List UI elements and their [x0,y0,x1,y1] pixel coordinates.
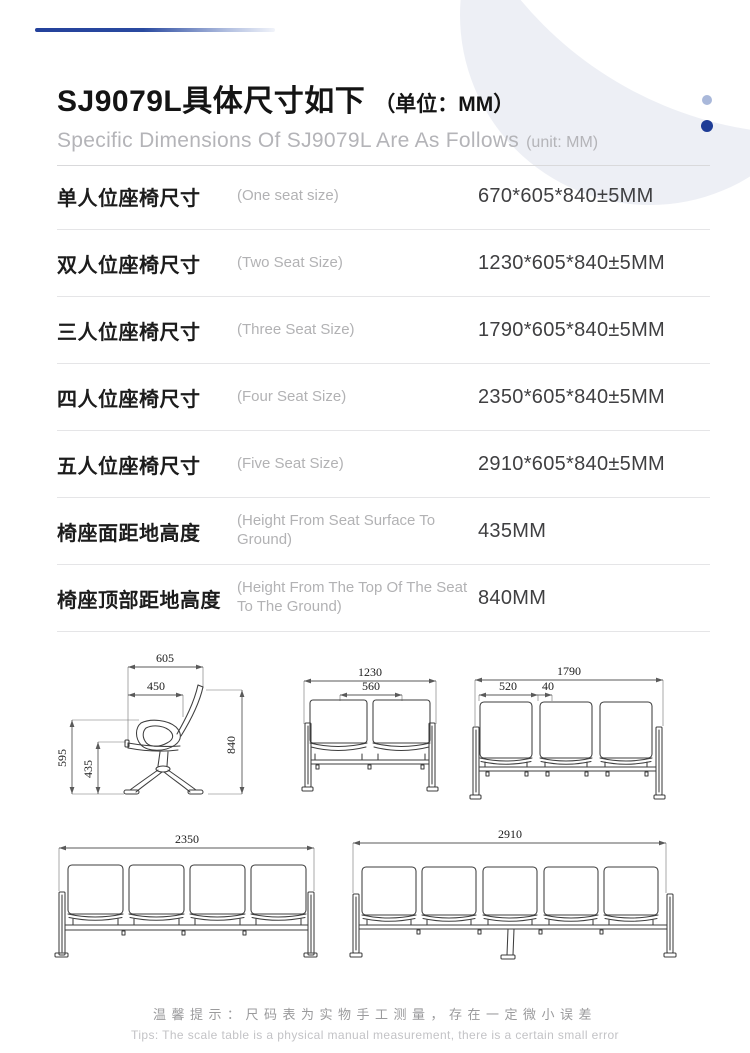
page-subtitle: Specific Dimensions Of SJ9079L Are As Fo… [57,129,519,153]
dim-label-595: 595 [55,749,69,767]
dim-label-560: 560 [362,679,380,693]
dim-label-840: 840 [224,736,238,754]
drawing-three-seat-front-view: 1790 520 40 [460,668,675,803]
row-label-zh: 五人位座椅尺寸 [57,450,237,479]
row-label-zh: 双人位座椅尺寸 [57,249,237,278]
row-label-zh: 椅座顶部距地高度 [57,584,237,613]
spec-sheet-page: SJ9079L具体尺寸如下 （单位：MM） Specific Dimension… [0,0,750,1053]
bench-outline [470,702,665,799]
dimension-lines: 1230 560 [304,665,436,724]
row-label-en: (Height From Seat Surface To Ground) [237,512,478,550]
row-value: 670*605*840±5MM [478,185,710,208]
dim-label-40: 40 [542,679,554,693]
row-label-zh: 单人位座椅尺寸 [57,182,237,211]
page-subtitle-unit: (unit: MM) [526,134,598,152]
row-label-en: (Height From The Top Of The Seat To The … [237,579,478,617]
table-row: 椅座面距地高度 (Height From Seat Surface To Gro… [57,498,710,565]
tip-text-en: Tips: The scale table is a physical manu… [0,1028,750,1042]
table-row: 单人位座椅尺寸 (One seat size) 670*605*840±5MM [57,163,710,230]
dimension-lines: 2910 [353,827,666,893]
row-label-zh: 四人位座椅尺寸 [57,383,237,412]
accent-line [35,28,275,32]
row-value: 435MM [478,520,710,543]
row-value: 2350*605*840±5MM [478,386,710,409]
chair-side-outline [124,685,203,794]
row-label-en: (Three Seat Size) [237,321,478,340]
dim-label-605: 605 [156,651,174,665]
table-row: 椅座顶部距地高度 (Height From The Top Of The Sea… [57,565,710,632]
row-label-en: (Four Seat Size) [237,388,478,407]
dim-label-2910: 2910 [498,827,522,841]
table-row: 四人位座椅尺寸 (Four Seat Size) 2350*605*840±5M… [57,364,710,431]
header: SJ9079L具体尺寸如下 （单位：MM） Specific Dimension… [57,76,710,166]
dimension-lines: 2350 [59,832,314,891]
row-value: 2910*605*840±5MM [478,453,710,476]
tip-text-zh: 温馨提示：尺码表为实物手工测量，存在一定微小误差 [0,1004,750,1023]
drawing-five-seat-front-view: 2910 [348,833,678,965]
dimension-lines: 605 450 840 595 435 [55,651,242,794]
row-value: 840MM [478,587,710,610]
table-row: 五人位座椅尺寸 (Five Seat Size) 2910*605*840±5M… [57,431,710,498]
dimension-table: 单人位座椅尺寸 (One seat size) 670*605*840±5MM … [57,163,710,632]
table-row: 双人位座椅尺寸 (Two Seat Size) 1230*605*840±5MM [57,230,710,297]
drawing-single-seat-side-view: 605 450 840 595 435 [40,645,280,805]
drawing-two-seat-front-view: 1230 560 [295,668,445,798]
bench-outline [302,700,438,791]
row-label-en: (Five Seat Size) [237,455,478,474]
dim-label-1790: 1790 [557,664,581,678]
row-value: 1230*605*840±5MM [478,252,710,275]
page-title: SJ9079L具体尺寸如下 [57,76,365,120]
bench-outline [350,867,676,959]
dim-label-1230: 1230 [358,665,382,679]
row-label-zh: 椅座面距地高度 [57,517,237,546]
dim-label-450: 450 [147,679,165,693]
footer-note: 温馨提示：尺码表为实物手工测量，存在一定微小误差 Tips: The scale… [0,1004,750,1042]
table-row: 三人位座椅尺寸 (Three Seat Size) 1790*605*840±5… [57,297,710,364]
row-label-en: (Two Seat Size) [237,254,478,273]
drawing-four-seat-front-view: 2350 [48,835,323,965]
dim-label-2350: 2350 [175,832,199,846]
row-label-en: (One seat size) [237,187,478,206]
row-value: 1790*605*840±5MM [478,319,710,342]
dimension-lines: 1790 520 40 [475,664,663,726]
bench-outline [55,865,317,957]
dim-label-520: 520 [499,679,517,693]
row-label-zh: 三人位座椅尺寸 [57,316,237,345]
dim-label-435: 435 [81,760,95,778]
page-title-unit: （单位：MM） [374,88,514,118]
